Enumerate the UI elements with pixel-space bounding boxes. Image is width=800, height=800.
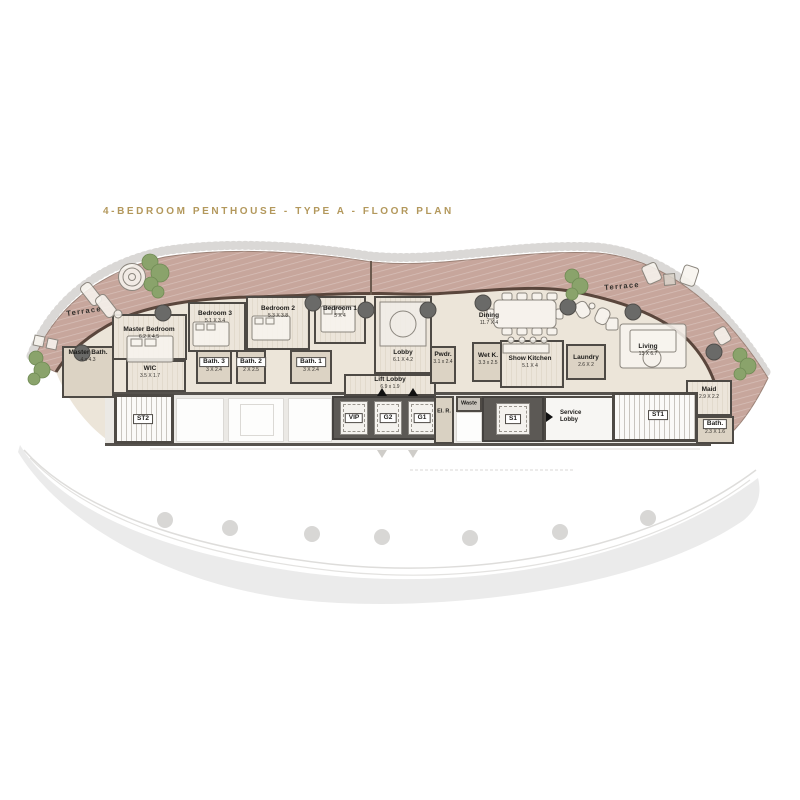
label-bedroom-2: Bedroom 2 5.3 X 3.8 — [261, 305, 295, 319]
label-terrace-left: Terrace — [66, 304, 103, 318]
label-lift-s1: S1 — [505, 414, 521, 424]
label-bedroom-3: Bedroom 3 5.1 X 3.4 — [198, 310, 232, 324]
label-st1: ST1 — [648, 410, 668, 420]
room-electrical — [434, 396, 454, 444]
label-waste: Waste — [461, 401, 477, 408]
label-lift-vip: VIP — [345, 413, 363, 423]
core-room — [176, 398, 224, 442]
room-bedroom-1 — [314, 296, 366, 344]
tree-icon — [565, 269, 588, 300]
label-st2: ST2 — [133, 414, 153, 424]
label-master-bath: Master Bath. 4 x 4.3 — [68, 349, 107, 363]
core-shaft — [240, 404, 274, 436]
label-maid-bath: Bath. 2.3 X 1.6 — [703, 419, 727, 435]
label-service-lobby: Service Lobby — [560, 410, 596, 424]
label-wet-kitchen: Wet K. 3.3 x 2.5 — [478, 352, 498, 366]
label-wic: WIC 3.5 X 1.7 — [140, 365, 160, 379]
label-living: Living 13 X 6.7 — [638, 343, 657, 357]
label-lobby: Lobby 6.1 X 4.2 — [393, 349, 413, 363]
label-lift-g1: G1 — [414, 413, 431, 423]
label-bath-1: Bath. 1 3 X 2.4 — [296, 357, 326, 373]
label-bath-2: Bath. 2 2 X 2.5 — [236, 357, 266, 373]
label-lift-lobby: Lift Lobby 6.9 x 1.9 — [374, 376, 405, 390]
label-master-bedroom: Master Bedroom 6.2 X 4.5 — [123, 326, 174, 340]
label-bath-3: Bath. 3 3 X 2.4 — [199, 357, 229, 373]
terrace-spa — [119, 264, 146, 291]
label-dining: Dining 11.7 X 4 — [479, 312, 499, 326]
tree-icon — [733, 348, 756, 380]
core-room — [288, 398, 332, 442]
label-terrace-right: Terrace — [604, 280, 640, 292]
tree-icon — [142, 254, 169, 298]
label-pwdr: Pwdr. 3.1 x 2.4 — [433, 351, 452, 365]
page-title: 4-BEDROOM PENTHOUSE - TYPE A - FLOOR PLA… — [103, 206, 454, 217]
label-laundry: Laundry 2.6 X 2 — [573, 354, 599, 368]
label-bedroom-1: Bedroom 1 5 X 4 — [323, 305, 357, 319]
label-lift-g2: G2 — [380, 413, 397, 423]
tree-icon — [28, 351, 50, 385]
room-bedroom-2 — [246, 296, 310, 350]
lounge-chairs-dining — [573, 300, 612, 327]
core-room — [456, 412, 482, 442]
ghost-lower-floor — [18, 445, 759, 604]
floor-plan-canvas: 4-BEDROOM PENTHOUSE - TYPE A - FLOOR PLA… — [0, 0, 800, 800]
terrace-seating-right — [641, 262, 732, 346]
label-maid: Maid 2.9 X 2.2 — [699, 386, 719, 400]
label-el-room: El. R. — [437, 409, 451, 416]
label-show-kitchen: Show Kitchen 5.1 X 4 — [509, 355, 552, 369]
